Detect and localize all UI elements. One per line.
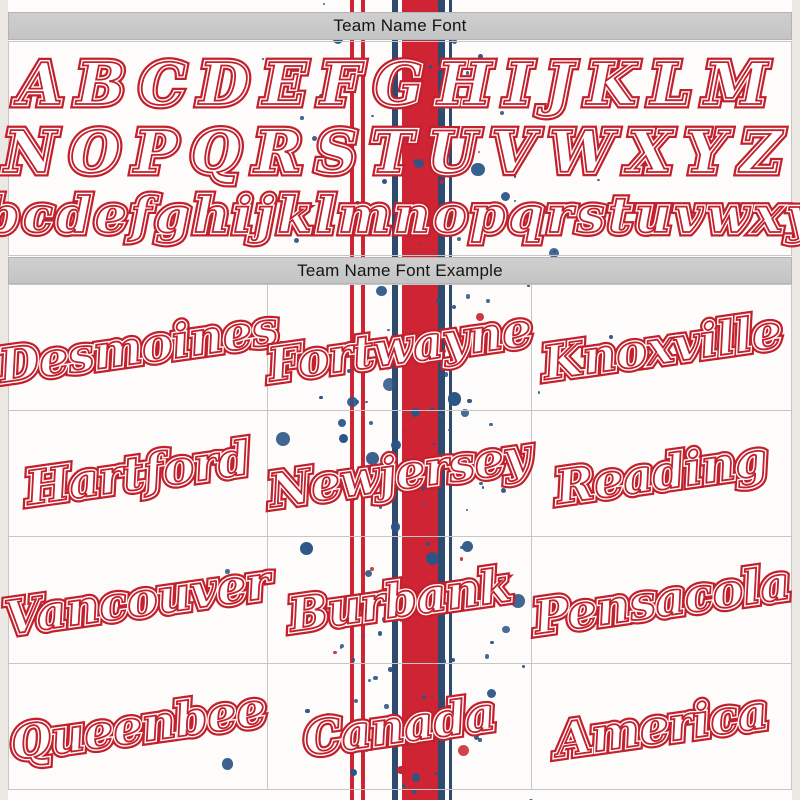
splatter-dot <box>323 3 325 5</box>
example-cell-burbank: Burbank <box>268 537 532 664</box>
example-name: Hartford <box>23 435 253 512</box>
alphabet-uppercase-line-2: NOPQRSTUVWXYZ <box>4 124 796 182</box>
example-name: Reading <box>553 436 770 511</box>
example-name: Desmoines <box>0 305 280 390</box>
example-cell-newjersey: Newjersey <box>268 411 532 538</box>
example-name: Queenbee <box>8 686 268 767</box>
team-name-font-example-header-label: Team Name Font Example <box>297 261 503 281</box>
example-name: Burbank <box>285 561 513 638</box>
example-cell-fortwayne: Fortwayne <box>268 284 532 411</box>
team-name-example-grid: Desmoines Fortwayne Knoxville Hartford N… <box>8 284 792 790</box>
example-name: America <box>553 689 770 764</box>
alphabet-lowercase-line: abcdefghijklmnopqrstuvwxyz <box>0 191 800 241</box>
custom-jersey-font-showcase: { "headers": { "font_section": "Team Nam… <box>0 0 800 800</box>
example-cell-canada: Canada <box>268 664 532 791</box>
example-cell-vancouver: Vancouver <box>8 537 268 664</box>
example-cell-america: America <box>532 664 792 791</box>
team-name-font-header: Team Name Font <box>8 12 792 40</box>
example-cell-desmoines: Desmoines <box>8 284 268 411</box>
example-name: Canada <box>301 690 497 762</box>
example-name: Vancouver <box>3 558 274 641</box>
team-name-font-header-label: Team Name Font <box>333 16 466 36</box>
example-cell-pensacola: Pensacola <box>532 537 792 664</box>
splatter-dot <box>412 790 416 794</box>
alphabet-preview-panel: ABCDEFGHIJKLM NOPQRSTUVWXYZ abcdefghijkl… <box>8 41 792 256</box>
example-name: Knoxville <box>539 308 783 387</box>
alphabet-uppercase-line-1: ABCDEFGHIJKLM <box>18 56 781 114</box>
example-name: Fortwayne <box>265 306 534 388</box>
example-name: Pensacola <box>531 559 793 640</box>
example-cell-knoxville: Knoxville <box>532 284 792 411</box>
example-cell-queenbee: Queenbee <box>8 664 268 791</box>
example-name: Newjersey <box>266 432 533 514</box>
team-name-font-example-header: Team Name Font Example <box>8 257 792 284</box>
example-cell-hartford: Hartford <box>8 411 268 538</box>
example-cell-reading: Reading <box>532 411 792 538</box>
